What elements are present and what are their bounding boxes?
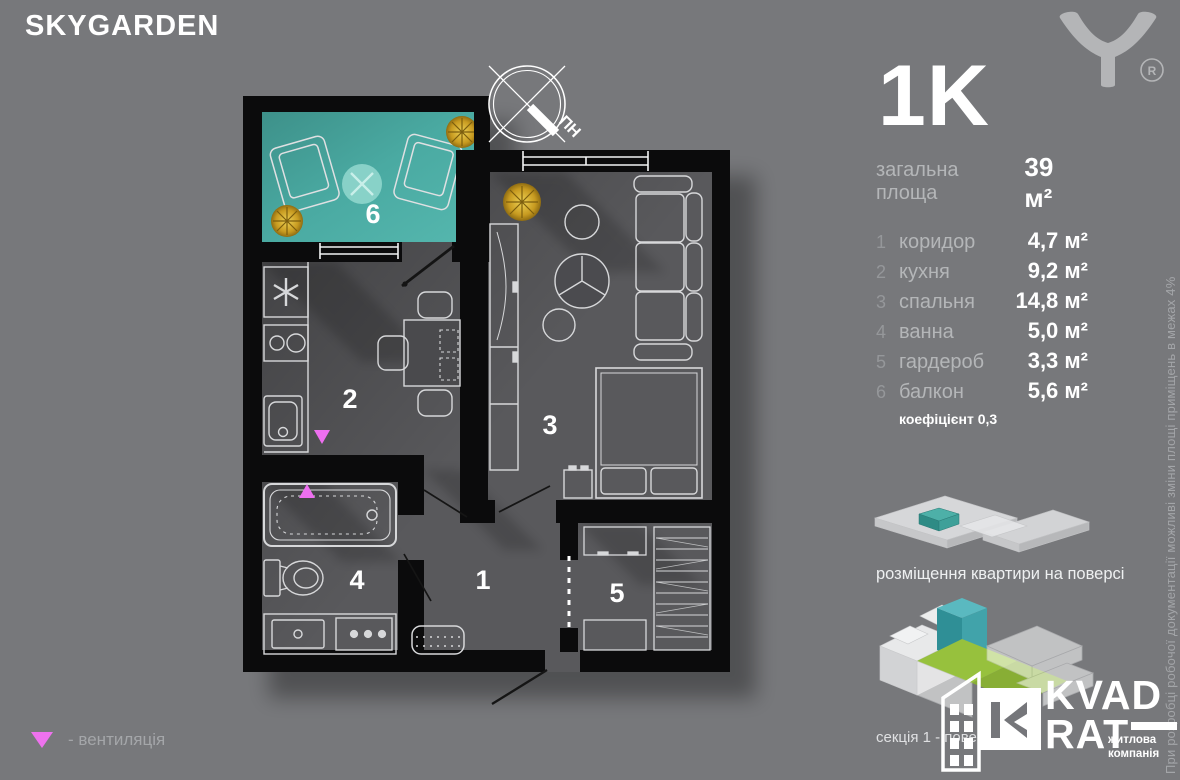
room-row: 2 кухня 9,2 м² — [876, 258, 1088, 288]
placement-caption: розміщення квартири на поверсі — [876, 565, 1124, 584]
plant-bedroom — [503, 183, 541, 221]
room-name: кухня — [899, 261, 1028, 284]
room-row: 6 балкон 5,6 м² — [876, 378, 1088, 408]
room-area: 4,7 м² — [1028, 228, 1088, 254]
tagline-word-2: компанія — [1108, 748, 1159, 760]
room-list: 1 коридор 4,7 м² 2 кухня 9,2 м² 3 спальн… — [876, 228, 1088, 408]
room-area: 5,6 м² — [1028, 378, 1088, 404]
dining-table — [404, 320, 460, 386]
room-number: 6 — [876, 382, 899, 403]
total-area-row: загальна площа 39 м² — [876, 152, 1088, 214]
registered-mark: R — [1148, 64, 1157, 78]
room-area: 14,8 м² — [1015, 288, 1088, 314]
floor-plan: 6 — [0, 0, 840, 780]
brand-tagline: житлова компанія — [1108, 733, 1159, 762]
room-number: 1 — [876, 232, 899, 253]
poster: SKYGARDEN R — [0, 0, 1180, 780]
room-row: 5 гардероб 3,3 м² — [876, 348, 1088, 378]
brand-building-icon — [935, 660, 1045, 772]
total-area-value: 39 м² — [1024, 152, 1088, 214]
room-label-5: 5 — [609, 578, 624, 608]
room-name: гардероб — [899, 351, 1028, 374]
room-area: 9,2 м² — [1028, 258, 1088, 284]
brand-logo: KVAD RAT житлова компанія — [935, 660, 1180, 780]
room-area: 5,0 м² — [1028, 318, 1088, 344]
room-area: 3,3 м² — [1028, 348, 1088, 374]
room-row: 1 коридор 4,7 м² — [876, 228, 1088, 258]
room-label-4: 4 — [349, 565, 364, 595]
apartment-info: 1K загальна площа 39 м² 1 коридор 4,7 м²… — [876, 56, 1088, 427]
plant-balcony-bottom — [271, 205, 303, 237]
room-number: 4 — [876, 322, 899, 343]
room-label-3: 3 — [542, 410, 557, 440]
room-row: 3 спальня 14,8 м² — [876, 288, 1088, 318]
coefficient-note: коефіцієнт 0,3 — [899, 411, 1088, 427]
room-label-1: 1 — [475, 565, 490, 595]
room-number: 2 — [876, 262, 899, 283]
apartment-type: 1K — [878, 56, 1088, 138]
floor-placement-diagram — [865, 488, 1095, 566]
brand-t-bar — [1131, 722, 1177, 730]
room-number: 3 — [876, 292, 899, 313]
room-label-2: 2 — [342, 384, 357, 414]
room-row: 4 ванна 5,0 м² — [876, 318, 1088, 348]
room-label-6: 6 — [365, 199, 380, 229]
room-balcony: 6 — [262, 110, 478, 242]
plant-balcony-top — [446, 116, 478, 148]
compass-needle — [530, 107, 556, 133]
room-name: балкон — [899, 381, 1028, 404]
tagline-word-1: житлова — [1108, 734, 1156, 746]
room-name: спальня — [899, 291, 1015, 314]
room-number: 5 — [876, 352, 899, 373]
balcony-door-knob — [402, 281, 407, 286]
total-area-label: загальна площа — [876, 159, 1024, 205]
room-name: ванна — [899, 321, 1028, 344]
room-name: коридор — [899, 231, 1028, 254]
